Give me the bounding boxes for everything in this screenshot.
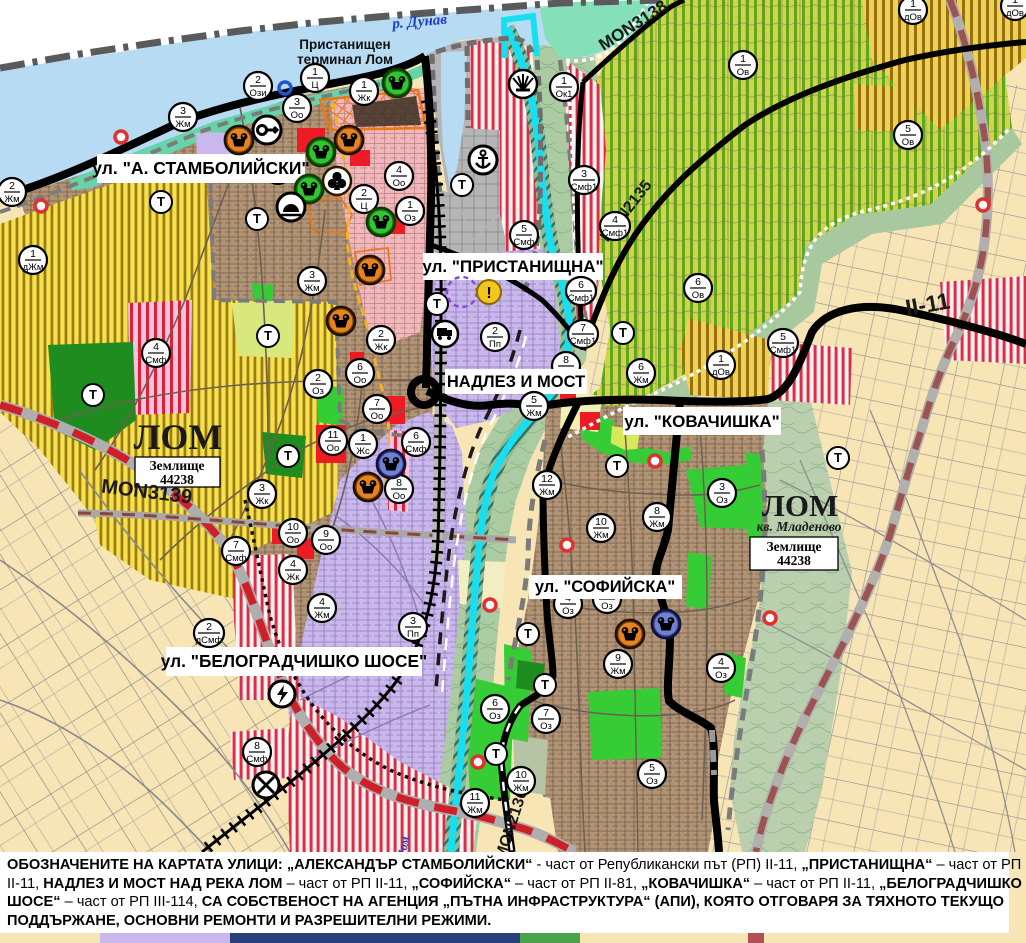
- svg-text:Жм: Жм: [593, 530, 608, 541]
- svg-text:НАДЛЕЗ И МОСТ: НАДЛЕЗ И МОСТ: [447, 373, 585, 391]
- svg-text:4: 4: [718, 656, 724, 668]
- svg-text:Ози: Ози: [249, 88, 266, 99]
- svg-text:Оз: Оз: [562, 606, 574, 617]
- svg-text:1: 1: [361, 79, 367, 91]
- svg-text:Оо: Оо: [291, 110, 304, 121]
- svg-text:Жм: Жм: [526, 408, 541, 419]
- svg-text:Смф: Смф: [405, 444, 426, 455]
- svg-text:Землище: Землище: [766, 539, 821, 554]
- svg-text:5: 5: [905, 123, 911, 135]
- svg-text:Жм: Жм: [467, 805, 482, 816]
- svg-text:3: 3: [309, 269, 315, 281]
- svg-text:Пп: Пп: [489, 339, 501, 350]
- svg-text:4: 4: [153, 341, 159, 353]
- svg-text:ЛОМ: ЛОМ: [134, 417, 223, 457]
- svg-text:6: 6: [695, 276, 701, 288]
- svg-text:5: 5: [521, 223, 527, 235]
- svg-text:8: 8: [396, 477, 402, 489]
- svg-text:1: 1: [561, 75, 567, 87]
- svg-text:10: 10: [515, 769, 527, 781]
- svg-text:Жс: Жс: [356, 446, 370, 457]
- svg-text:12: 12: [541, 473, 553, 485]
- svg-text:4: 4: [290, 558, 296, 570]
- svg-text:T: T: [157, 194, 165, 209]
- svg-text:8: 8: [254, 740, 260, 752]
- svg-text:ЛОМ: ЛОМ: [762, 488, 838, 523]
- svg-text:Жм: Жм: [314, 610, 329, 621]
- svg-text:Оо: Оо: [320, 542, 333, 553]
- svg-text:3: 3: [410, 615, 416, 627]
- svg-text:2: 2: [378, 328, 384, 340]
- svg-text:Оо: Оо: [393, 491, 406, 502]
- svg-text:1: 1: [718, 353, 724, 365]
- svg-text:Жк: Жк: [358, 93, 372, 104]
- svg-text:4: 4: [612, 214, 618, 226]
- svg-text:3: 3: [719, 481, 725, 493]
- svg-text:9: 9: [323, 528, 329, 540]
- svg-text:Смф1: Смф1: [770, 345, 797, 356]
- svg-text:9: 9: [615, 652, 621, 664]
- svg-text:дОв: дОв: [1006, 8, 1024, 19]
- svg-text:6: 6: [413, 430, 419, 442]
- svg-text:7: 7: [233, 539, 239, 551]
- svg-text:!: !: [486, 285, 491, 302]
- svg-text:44238: 44238: [777, 553, 811, 568]
- svg-text:1: 1: [1012, 0, 1018, 6]
- svg-text:Пристанищен: Пристанищен: [299, 37, 390, 52]
- svg-text:Оо: Оо: [371, 411, 384, 422]
- svg-text:Оо: Оо: [287, 535, 300, 546]
- svg-text:ул. "БЕЛОГРАДЧИШКО ШОСЕ": ул. "БЕЛОГРАДЧИШКО ШОСЕ": [161, 651, 427, 671]
- svg-text:Жк: Жк: [256, 496, 270, 507]
- svg-text:дОв: дОв: [904, 12, 922, 23]
- svg-text:Жм: Жм: [175, 119, 190, 130]
- svg-text:8: 8: [654, 505, 660, 517]
- svg-text:11: 11: [470, 791, 481, 803]
- svg-text:Оз: Оз: [404, 213, 416, 224]
- svg-text:Ок1: Ок1: [556, 89, 573, 100]
- svg-text:3: 3: [294, 96, 300, 108]
- svg-text:1: 1: [910, 0, 916, 10]
- svg-text:Жм: Жм: [539, 487, 554, 498]
- svg-text:3: 3: [259, 482, 265, 494]
- svg-text:6: 6: [357, 361, 363, 373]
- svg-text:2: 2: [255, 74, 261, 86]
- svg-text:7: 7: [543, 707, 549, 719]
- svg-text:Смф: Смф: [145, 355, 166, 366]
- svg-text:дСмф: дСмф: [196, 635, 223, 646]
- svg-text:Оз: Оз: [312, 386, 324, 397]
- svg-text:7: 7: [580, 322, 586, 334]
- svg-text:2: 2: [361, 187, 367, 199]
- svg-text:3: 3: [581, 168, 587, 180]
- svg-text:5: 5: [649, 762, 655, 774]
- svg-text:6: 6: [492, 697, 498, 709]
- svg-text:Жк: Жк: [287, 572, 301, 583]
- svg-text:T: T: [264, 328, 272, 343]
- svg-text:Смф: Смф: [246, 754, 267, 765]
- svg-text:1: 1: [740, 53, 746, 65]
- svg-text:1: 1: [312, 66, 318, 78]
- svg-text:3: 3: [180, 105, 186, 117]
- svg-text:Землище: Землище: [149, 458, 204, 473]
- svg-text:Ц: Ц: [360, 201, 367, 212]
- svg-text:Ц: Ц: [311, 80, 318, 91]
- svg-text:Оо: Оо: [354, 375, 367, 386]
- svg-text:4: 4: [396, 164, 402, 176]
- svg-text:Жк: Жк: [375, 342, 389, 353]
- svg-text:10: 10: [287, 521, 299, 533]
- svg-text:6: 6: [638, 361, 644, 373]
- svg-text:Жм: Жм: [633, 375, 648, 386]
- svg-text:T: T: [492, 746, 500, 761]
- svg-text:Жм: Жм: [610, 666, 625, 677]
- svg-text:Жм: Жм: [4, 194, 19, 205]
- svg-text:T: T: [89, 387, 97, 402]
- svg-text:2: 2: [206, 621, 212, 633]
- svg-text:дОв: дОв: [712, 367, 730, 378]
- svg-text:T: T: [253, 211, 261, 226]
- svg-text:Оз: Оз: [716, 495, 728, 506]
- svg-text:1: 1: [360, 432, 366, 444]
- svg-text:Смф1: Смф1: [602, 228, 629, 239]
- svg-text:Оз: Оз: [646, 776, 658, 787]
- svg-text:Смф1: Смф1: [571, 182, 598, 193]
- svg-text:2: 2: [315, 372, 321, 384]
- svg-text:7: 7: [374, 397, 380, 409]
- svg-text:Смф: Смф: [513, 237, 534, 248]
- svg-text:T: T: [619, 325, 627, 340]
- svg-text:ул. "А. СТАМБОЛИЙСКИ": ул. "А. СТАМБОЛИЙСКИ": [92, 157, 309, 178]
- svg-text:4: 4: [319, 596, 325, 608]
- svg-text:T: T: [433, 296, 441, 311]
- svg-text:Оз: Оз: [601, 601, 613, 612]
- svg-text:T: T: [458, 177, 466, 192]
- svg-text:10: 10: [595, 516, 607, 528]
- svg-text:T: T: [834, 450, 842, 465]
- svg-text:ул. "КОВАЧИШКА": ул. "КОВАЧИШКА": [624, 412, 780, 431]
- svg-text:Оо: Оо: [327, 443, 340, 454]
- svg-text:T: T: [613, 458, 621, 473]
- svg-text:Оз: Оз: [489, 711, 501, 722]
- svg-text:Жм: Жм: [649, 519, 664, 530]
- svg-text:5: 5: [531, 394, 537, 406]
- svg-text:Жм: Жм: [304, 283, 319, 294]
- svg-text:T: T: [524, 626, 532, 641]
- svg-text:1: 1: [407, 199, 413, 211]
- svg-text:8: 8: [563, 354, 569, 366]
- svg-text:6: 6: [578, 279, 584, 291]
- svg-text:Пп: Пп: [407, 629, 419, 640]
- svg-text:T: T: [284, 448, 292, 463]
- svg-text:Ов: Ов: [737, 67, 749, 78]
- svg-text:Смф1: Смф1: [568, 293, 595, 304]
- svg-text:T: T: [541, 677, 549, 692]
- svg-text:Жм: Жм: [513, 783, 528, 794]
- svg-text:11: 11: [328, 429, 339, 441]
- svg-text:2: 2: [492, 325, 498, 337]
- svg-text:Ов: Ов: [692, 290, 704, 301]
- svg-text:5: 5: [780, 331, 786, 343]
- svg-text:кв. Младеново: кв. Младеново: [757, 519, 842, 534]
- svg-text:Оз: Оз: [540, 721, 552, 732]
- svg-text:Смф1: Смф1: [570, 336, 597, 347]
- svg-text:Ов: Ов: [902, 137, 914, 148]
- svg-text:Оо: Оо: [393, 178, 406, 189]
- svg-text:ул. "ПРИСТАНИЩНА": ул. "ПРИСТАНИЩНА": [422, 257, 603, 276]
- svg-text:Смф: Смф: [225, 553, 246, 564]
- svg-text:дЖм: дЖм: [23, 262, 44, 273]
- svg-text:2: 2: [9, 180, 15, 192]
- svg-text:ул. "СОФИЙСКА": ул. "СОФИЙСКА": [535, 577, 675, 596]
- svg-text:1: 1: [30, 248, 36, 260]
- svg-text:Оз: Оз: [715, 670, 727, 681]
